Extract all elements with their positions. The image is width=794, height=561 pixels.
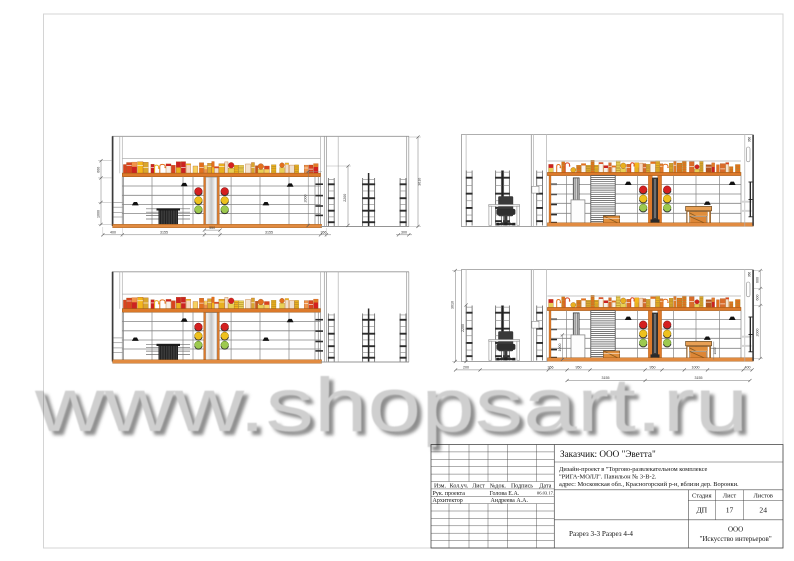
svg-text:Дата: Дата [539, 483, 551, 489]
svg-text:Рук. проекта: Рук. проекта [433, 491, 466, 497]
svg-text:600: 600 [755, 277, 759, 283]
svg-text:400: 400 [110, 231, 116, 235]
svg-text:3155: 3155 [265, 231, 273, 235]
svg-text:3610: 3610 [451, 301, 455, 309]
svg-text:"РИГА-МОЛЛ". Павильон № 3-В-2.: "РИГА-МОЛЛ". Павильон № 3-В-2. [559, 474, 657, 481]
svg-text:600: 600 [96, 167, 100, 173]
svg-text:Изм.: Изм. [434, 483, 446, 489]
svg-text:Листов: Листов [753, 493, 773, 500]
svg-text:06.03.17.: 06.03.17. [537, 490, 554, 495]
svg-text:Кол.уч.: Кол.уч. [450, 483, 469, 489]
svg-text:Лист: Лист [723, 493, 737, 500]
svg-text:адрес: Московская обл., Красно: адрес: Московская обл., Красногорский р-… [559, 481, 739, 488]
svg-text:1000: 1000 [713, 347, 717, 354]
svg-text:366: 366 [321, 231, 327, 235]
svg-text:1000: 1000 [558, 344, 562, 352]
svg-text:Архитектор: Архитектор [433, 498, 463, 504]
svg-text:3610: 3610 [417, 178, 421, 186]
svg-text:Заказчик: ООО "Эветта": Заказчик: ООО "Эветта" [560, 449, 656, 459]
svg-text:ДП: ДП [696, 506, 707, 515]
svg-text:2200: 2200 [461, 324, 465, 332]
svg-text:2000: 2000 [303, 195, 307, 203]
svg-text:17: 17 [726, 506, 734, 515]
svg-text:300: 300 [401, 231, 407, 235]
svg-text:2200: 2200 [343, 194, 347, 202]
svg-text:550: 550 [209, 226, 215, 230]
svg-text:24: 24 [759, 506, 767, 515]
svg-text:3155: 3155 [160, 231, 168, 235]
svg-text:Андреева А.А.: Андреева А.А. [491, 498, 529, 504]
svg-text:Лист: Лист [472, 483, 485, 489]
svg-text:"Искусство интерьеров": "Искусство интерьеров" [699, 535, 771, 543]
svg-text:ООО: ООО [728, 526, 743, 534]
svg-text:Стадия: Стадия [692, 493, 712, 500]
svg-text:Дизайн-проект в "Торгово-разв: Дизайн-проект в "Торгово-развлекательном… [559, 466, 707, 473]
svg-text:1000: 1000 [96, 210, 100, 218]
svg-text:Разрез 3-3 Разрез 4-4: Разрез 3-3 Разрез 4-4 [569, 530, 633, 538]
svg-text:№док.: №док. [490, 483, 507, 489]
svg-text:Подпись: Подпись [511, 483, 533, 489]
svg-text:Голова Е.А.: Голова Е.А. [490, 491, 520, 497]
svg-text:2000: 2000 [755, 329, 759, 337]
svg-text:600: 600 [755, 295, 759, 301]
